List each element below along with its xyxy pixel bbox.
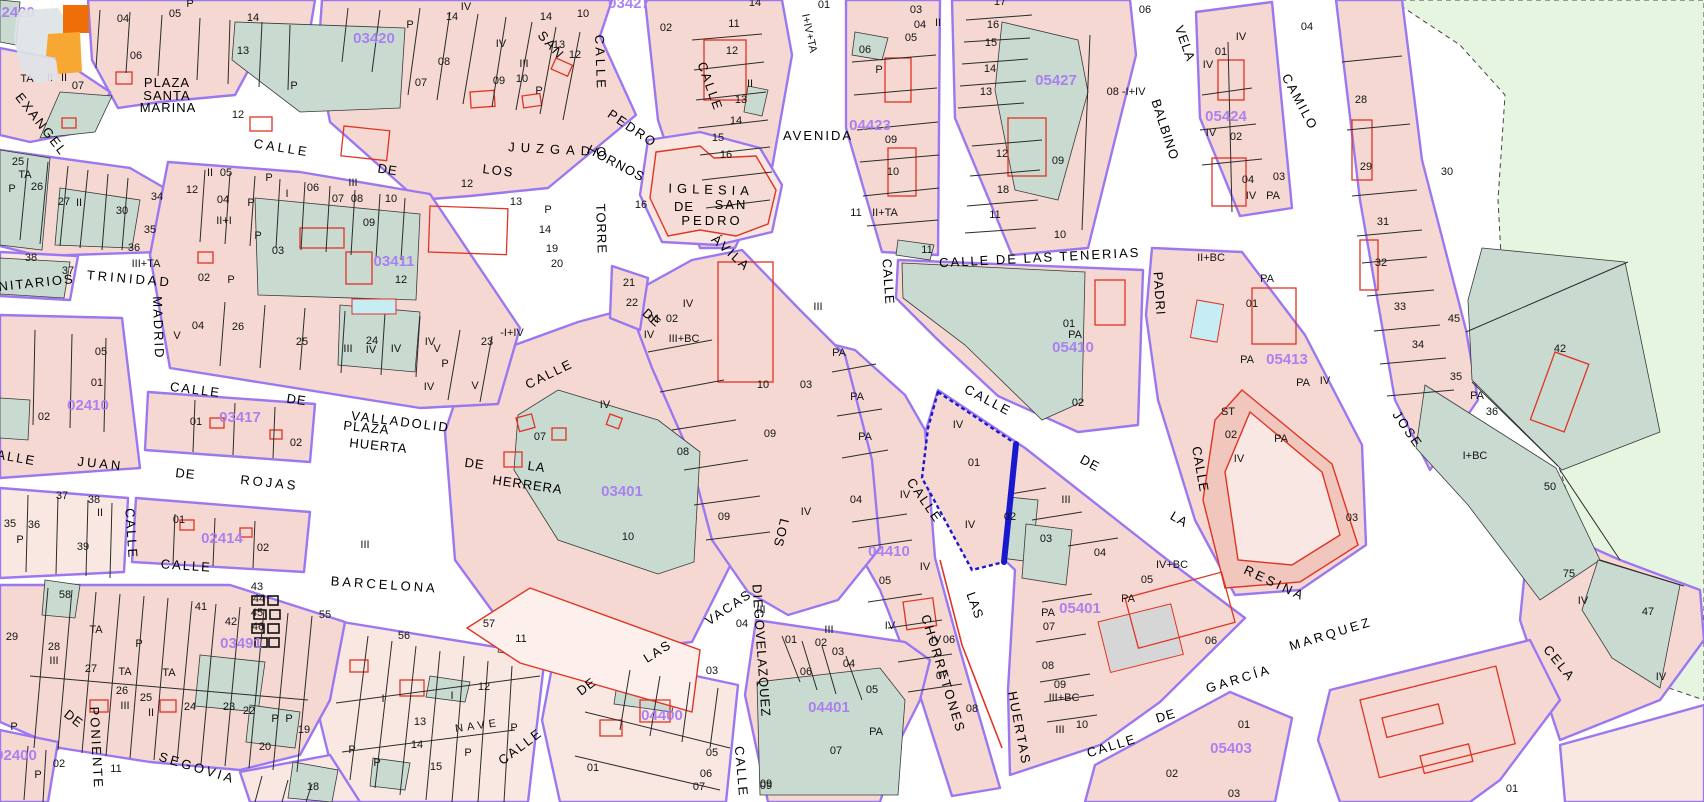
cadastral-block[interactable] [1318, 640, 1560, 802]
parcel-number-label: IV [366, 344, 377, 356]
parcel-number-label: III [120, 700, 129, 712]
parcel-number-label: 02 [666, 313, 678, 325]
parcel-number-label: -I+IV [500, 327, 524, 339]
parcel-number-label: 03 [1273, 171, 1285, 183]
parcel-number-label: 10 [757, 379, 769, 391]
parcel-number-label: 07 [332, 193, 344, 205]
parcel-number-label: 06 [307, 182, 319, 194]
street-name-label: DE [175, 465, 197, 482]
parcel-number-label: II [747, 78, 753, 90]
parcel-number-label: 01 [190, 416, 202, 428]
street-name-label: CALLE [879, 258, 897, 305]
block-id-label[interactable]: 03420 [353, 30, 395, 47]
parcel-number-label: I [381, 693, 384, 705]
parcel-number-label: P [464, 747, 471, 759]
parcel-number-label: IV [424, 381, 435, 393]
parcel-number-label: 01 [968, 457, 980, 469]
parcel-number-label: PA [1240, 354, 1255, 366]
parcel-number-label: 43 [251, 581, 263, 593]
parcel-number-label: 02 [1072, 397, 1084, 409]
parcel-number-label: PA [858, 431, 873, 443]
map-viewport[interactable]: CALLESANPEDROHORNOSTORRECALLEDELOSJUZGAD… [0, 0, 1704, 802]
parcel-number-label: PA [1470, 390, 1485, 402]
parcel-number-label: 04 [117, 13, 129, 25]
parcel-number-label: 14 [411, 739, 423, 751]
parcel-number-label: 07 [936, 670, 948, 682]
parcel-number-label: 04 [850, 494, 862, 506]
street-name-label: SAN [715, 197, 748, 212]
parcel-number-label: P [535, 85, 542, 97]
parcel-number-label: 01 [818, 0, 830, 11]
parcel-number-label: IV [461, 1, 472, 13]
parcel-number-label: 07 [1043, 621, 1055, 633]
parcel-number-label: III [824, 624, 833, 636]
street-name-label: DE [674, 199, 694, 214]
parcel-number-label: 11 [989, 209, 1000, 221]
parcel-number-label: 06 [700, 768, 712, 780]
parcel-number-label: 09 [760, 778, 772, 790]
parcel-number-label: 05 [220, 167, 232, 179]
parcel-number-label: 29 [1360, 161, 1372, 173]
street-name-label: CALLE [160, 556, 212, 575]
street-name-label: MADRID [150, 296, 167, 360]
parcel-number-label: 06 [130, 50, 142, 62]
parcel-number-label: 07 [830, 745, 842, 757]
parcel-number-label: 36 [1486, 406, 1498, 418]
parcel-number-label: 45 [251, 607, 263, 619]
parcel-number-label: 01 [648, 313, 660, 325]
parcel-number-label: P [510, 722, 517, 734]
parcel-number-label: 04 [843, 658, 855, 670]
parcel-number-label: 21 [623, 277, 635, 289]
parcel-number-label: 19 [546, 243, 558, 255]
parcel-number-label: 09 [718, 511, 730, 523]
overview-locator-highlight-icon [63, 5, 89, 33]
parcel-number-label: 05 [706, 747, 718, 759]
parcel-number-label: 13 [237, 45, 249, 57]
parcel-number-label: 11 [921, 244, 932, 256]
parcel-number-label: 42 [225, 616, 237, 628]
parcel-number-label: 26 [232, 321, 244, 333]
parcel-number-label: II [97, 507, 103, 519]
parcel-number-label: 38 [25, 252, 37, 264]
parcel-number-label: 16 [987, 19, 999, 31]
parcel-number-label: P [544, 204, 551, 216]
parcel-number-label: 37 [62, 265, 74, 277]
parcel-number-label: 10 [1076, 719, 1088, 731]
street-name-label: PONIENTE [87, 706, 106, 789]
street-name-label: BARCELONA [330, 573, 438, 595]
parcel-number-label: 10 [1054, 229, 1066, 241]
parcel-number-label: 14 [749, 0, 761, 9]
street-name-label: LAS [963, 590, 987, 621]
parcel-number-label: 11 [515, 633, 526, 645]
parcel-number-label: 44 [253, 593, 265, 605]
parcel-number-label: 02 [1166, 768, 1178, 780]
parcel-number-label: 57 [483, 618, 495, 630]
block-id-label[interactable]: 05403 [1210, 740, 1252, 757]
parcel-number-label: 08 -I+IV [1107, 86, 1146, 98]
parcel-number-label: 02 [257, 542, 269, 554]
parcel-number-label: 03 [800, 379, 812, 391]
block-id-label[interactable]: 03427 [608, 0, 650, 12]
parcel-number-label: 04 [217, 194, 229, 206]
parcel-number-label: 25 [140, 692, 152, 704]
parcel-number-label: 13 [553, 39, 565, 51]
parcel-number-label: 02 [660, 22, 672, 34]
parcel-number-label: 23 [223, 701, 235, 713]
parcel-number-label: P [265, 172, 272, 184]
parcel-number-label: 58 [59, 589, 71, 601]
parcel-number-label: 34 [151, 191, 163, 203]
parcel-number-label: IV [931, 634, 942, 646]
parcel-number-label: 13 [510, 196, 522, 208]
parcel-number-label: 01 [1238, 719, 1250, 731]
parcel-number-label: P [227, 274, 234, 286]
parcel-number-label: 01 [173, 514, 185, 526]
parcel-number-label: 09 [885, 134, 897, 146]
parcel-number-label: 10 [516, 73, 528, 85]
map-canvas[interactable]: CALLESANPEDROHORNOSTORRECALLEDELOSJUZGAD… [0, 0, 1704, 802]
block-id-label[interactable]: 02410 [67, 397, 109, 414]
parcel-number-label: 08 [966, 703, 978, 715]
parcel-number-label: 30 [1441, 166, 1453, 178]
parcel-number-label: P [135, 638, 142, 650]
parcel-number-label: 03 [272, 245, 284, 257]
parcel-number-label: PA [1068, 329, 1083, 341]
parcel-number-label: ST [1221, 406, 1235, 418]
parcel-number-label: 18 [997, 184, 1009, 196]
parcel-number-label: 10 [577, 8, 589, 20]
building-outline [250, 117, 272, 131]
parcel-number-label: P [285, 713, 292, 725]
parcel-number-label: 05 [1141, 574, 1153, 586]
parcel-number-label: 10 [385, 193, 397, 205]
parcel-number-label: PA [1296, 377, 1311, 389]
parcel-number-label: II+BC [1197, 252, 1225, 264]
parcel-number-label: PA [1041, 607, 1056, 619]
block-id-label[interactable]: 03411 [374, 253, 415, 270]
parcel-number-label: IV [1236, 31, 1247, 43]
parcel-number-label: 10 [622, 531, 634, 543]
parcel-number-label: II [61, 72, 67, 84]
parcel-number-label: 12 [232, 109, 244, 121]
parcel-number-label: 07 [415, 77, 427, 89]
parcel-number-label: III [1061, 494, 1070, 506]
parcel-number-label: 05 [905, 32, 917, 44]
block-id-label[interactable]: 02414 [201, 530, 243, 547]
parcel-number-label: 28 [1355, 94, 1367, 106]
parcel-number-label: IV [1234, 453, 1245, 465]
parcel-number-label: 09 [1054, 679, 1066, 691]
parcel-number-label: P [290, 80, 297, 92]
parcel-number-label: 39 [77, 541, 89, 553]
block-id-label[interactable]: 04400 [641, 707, 683, 724]
parcel-number-label: 03 [1346, 512, 1358, 524]
parcel-number-label: III [49, 655, 58, 667]
street-name-label: PADRI [1150, 271, 1168, 316]
parcel-number-label: 23 [481, 336, 493, 348]
street-name-label: LA [527, 458, 547, 475]
parcel-number-label: PA [832, 347, 847, 359]
parcel-number-label: IV [600, 399, 611, 411]
parcel-number-label: 27 [58, 196, 70, 208]
street-name-label: VELA [1172, 23, 1199, 63]
parcel-number-label: 06 [943, 634, 955, 646]
parcel-number-label: 14 [984, 63, 996, 75]
parcel-number-label: 31 [1377, 216, 1389, 228]
parcel-number-label: 07 [534, 431, 546, 443]
street-name-label: CALLE [732, 745, 751, 797]
parcel-number-label: III [348, 177, 357, 189]
parcel-number-label: 16 [635, 199, 647, 211]
cadastral-block[interactable] [1336, 0, 1478, 470]
parcel-number-label: 11 [110, 763, 121, 775]
parcel-number-label: 05 [95, 346, 107, 358]
courtyard-parcel[interactable] [0, 150, 50, 250]
parcel-number-label: 28 [48, 641, 60, 653]
parcel-number-label: 18 [307, 781, 319, 793]
parcel-number-label: 02 [38, 411, 50, 423]
parcel-number-label: 19 [298, 724, 310, 736]
street-name-label: HUERTA [349, 435, 408, 456]
pool [352, 299, 396, 314]
parcel-number-label: 11 [850, 207, 861, 219]
parcel-number-label: II [207, 167, 213, 179]
parcel-number-label: IV [683, 298, 694, 310]
parcel-number-label: 01 [1246, 298, 1258, 310]
block-id-label[interactable]: 05413 [1266, 351, 1308, 368]
pool [1190, 300, 1223, 342]
parcel-number-label: 06 [800, 666, 812, 678]
parcel-number-label: III [519, 58, 528, 70]
parcel-number-label: 06 [859, 44, 871, 56]
parcel-number-label: 16 [720, 149, 732, 161]
courtyard-parcel[interactable] [0, 398, 30, 440]
block-id-label[interactable]: 05427 [1035, 72, 1077, 89]
parcel-number-label: 06 [1139, 4, 1151, 16]
parcel-number-label: I [285, 188, 288, 200]
parcel-number-label: I [450, 690, 453, 702]
parcel-number-label: 09 [1052, 155, 1064, 167]
parcel-number-label: P [254, 230, 261, 242]
parcel-number-label: 04 [1094, 547, 1106, 559]
parcel-number-label: P [406, 19, 413, 31]
parcel-number-label: 02 [290, 437, 302, 449]
parcel-number-label: TA [89, 624, 103, 636]
parcel-number-label: 03 [910, 4, 922, 16]
parcel-number-label: 27 [85, 663, 97, 675]
parcel-number-label: 35 [4, 518, 16, 530]
parcel-number-label: P [348, 744, 355, 756]
parcel-number-label: 35 [144, 224, 156, 236]
parcel-number-label: 13 [735, 94, 747, 106]
parcel-number-label: IV [801, 506, 812, 518]
parcel-number-label: 24 [184, 701, 196, 713]
parcel-number-label: 03 [1228, 788, 1240, 800]
parcel-number-label: 38 [88, 494, 100, 506]
parcel-number-label: 02 [1225, 429, 1237, 441]
parcel-number-label: 14 [446, 11, 458, 23]
block-id-label[interactable]: 02400 [0, 747, 37, 764]
parcel-number-label: 26 [116, 685, 128, 697]
parcel-number-label: 20 [259, 741, 271, 753]
block-id-label[interactable]: 04423 [849, 117, 891, 134]
street-name-label: MARQUEZ [1287, 614, 1374, 653]
street-name-label: GARCÍA [1204, 662, 1273, 696]
parcel-number-label: IV [1246, 190, 1257, 202]
street-name-label: DE [1078, 452, 1103, 475]
parcel-number-label: 34 [1412, 339, 1424, 351]
parcel-number-label: III+BC [669, 333, 700, 345]
parcel-number-label: IV [900, 489, 911, 501]
block-id-label[interactable]: 05424 [1205, 108, 1247, 125]
parcel-number-label: 12 [395, 274, 407, 286]
parcel-number-label: 14 [539, 224, 551, 236]
parcel-number-label: IV [1656, 671, 1667, 683]
parcel-number-label: P [8, 183, 15, 195]
parcel-number-label: 36 [128, 242, 140, 254]
street-name-label: PEDRO [681, 213, 742, 228]
courtyard-parcel[interactable] [338, 305, 420, 372]
parcel-number-label: IV [1320, 375, 1331, 387]
parcel-number-label: P [16, 534, 23, 546]
parcel-number-label: III [813, 301, 822, 313]
parcel-number-label: 15 [712, 132, 724, 144]
parcel-number-label: I+IV+TA [799, 13, 819, 55]
parcel-number-label: 56 [398, 630, 410, 642]
parcel-number-label: 29 [6, 631, 18, 643]
parcel-number-label: 35 [1450, 371, 1462, 383]
parcel-number-label: 02 [1230, 131, 1242, 143]
parcel-number-label: V [471, 380, 479, 392]
street-name-label: AVENIDA [783, 128, 853, 143]
parcel-number-label: II [935, 17, 941, 29]
parcel-number-label: 01 [1506, 783, 1518, 795]
parcel-number-label: III [343, 343, 352, 355]
block-id-label[interactable]: 05410 [1052, 339, 1094, 356]
parcel-number-label: TA [118, 666, 132, 678]
parcel-number-label: 17 [994, 0, 1006, 8]
parcel-number-label: 42 [1554, 343, 1566, 355]
parcel-number-label: 22 [626, 297, 638, 309]
parcel-number-label: P [10, 721, 17, 733]
parcel-number-label: 30 [116, 205, 128, 217]
street-name-label: TORRE [593, 203, 610, 254]
parcel-number-label: 01 [1215, 46, 1227, 58]
parcel-number-label: 08 [1042, 660, 1054, 672]
block-id-label[interactable]: 04410 [868, 543, 910, 560]
parcel-number-label: IV [965, 519, 976, 531]
parcel-number-label: III+TA [132, 258, 161, 270]
parcel-number-label: 01 [91, 377, 103, 389]
parcel-number-label: IV [920, 561, 931, 573]
parcel-number-label: 05 [879, 575, 891, 587]
block-id-label[interactable]: 03417 [219, 409, 261, 426]
parcel-number-label: 20 [551, 258, 563, 270]
parcel-number-label: 15 [430, 761, 442, 773]
selected-parcel[interactable] [922, 392, 1016, 570]
street-name-label: DE [377, 161, 399, 179]
parcel-number-label: TA [18, 169, 32, 181]
parcel-number-label: 04 [192, 320, 204, 332]
parcel-number-label: III [1055, 724, 1064, 736]
parcel-number-label: 02 [53, 758, 65, 770]
block-id-label[interactable]: 05401 [1059, 600, 1101, 617]
parcel-number-label: 08 [677, 446, 689, 458]
parcel-number-label: 12 [478, 681, 490, 693]
parcel-number-label: IV [1578, 595, 1589, 607]
street-name-label: IGLESIA [668, 181, 754, 199]
parcel-number-label: PA [1121, 593, 1136, 605]
parcel-number-label: P [186, 0, 193, 10]
parcel-number-label: 25 [296, 336, 308, 348]
parcel-number-label: 09 [493, 75, 505, 87]
cadastral-block[interactable] [0, 730, 58, 802]
street-name-label: CALLE [253, 136, 311, 160]
parcel-number-label: V [173, 330, 181, 342]
block-id-label[interactable]: 03491 [220, 635, 262, 652]
parcel-number-label: 14 [540, 11, 552, 23]
street-name-label: BALBINO [1148, 97, 1182, 162]
street-name-label: CALLE [592, 34, 609, 91]
parcel-number-label: 04 [1242, 174, 1254, 186]
parcel-number-label: 47 [1642, 606, 1654, 618]
parcel-number-label: P [875, 64, 882, 76]
parcel-number-label: 03 [832, 646, 844, 658]
parcel-number-label: IV [496, 38, 507, 50]
parcel-number-label: PA [1266, 190, 1281, 202]
parcel-number-label: 09 [764, 428, 776, 440]
parcel-number-label: II [76, 197, 82, 209]
block-id-label[interactable]: 03401 [601, 483, 643, 500]
parcel-number-label: 14 [730, 115, 742, 127]
parcel-number-label: 14 [247, 12, 259, 24]
parcel-number-label: IV [885, 620, 896, 632]
parcel-number-label: 02 [198, 272, 210, 284]
parcel-number-label: P [271, 713, 278, 725]
parcel-number-label: 25 [12, 156, 24, 168]
parcel-number-label: 04 [736, 618, 748, 630]
parcel-number-label: 32 [1375, 257, 1387, 269]
parcel-number-label: 45 [1448, 313, 1460, 325]
parcel-number-label: 04 [1301, 21, 1313, 33]
parcel-number-label: P [441, 358, 448, 370]
parcel-number-label: IV [391, 343, 402, 355]
parcel-number-label: PA [1274, 433, 1289, 445]
street-name-label: DE [464, 455, 486, 473]
parcel-number-label: III [756, 604, 765, 616]
parcel-number-label: 02 [815, 637, 827, 649]
parcel-number-label: II+TA [872, 207, 898, 219]
parcel-number-label: 46 [252, 621, 264, 633]
parcel-number-label: 04 [914, 19, 926, 31]
parcel-number-label: PA [1260, 273, 1275, 285]
parcel-number-label: 05 [169, 8, 181, 20]
parcel-number-label: 33 [1394, 301, 1406, 313]
block-id-label[interactable]: 04401 [808, 699, 850, 716]
parcel-number-label: P [34, 769, 41, 781]
parcel-number-label: IV [953, 419, 964, 431]
parcel-number-label: 03 [706, 665, 718, 677]
parcel-number-label: IV [1206, 127, 1217, 139]
parcel-number-label: 12 [996, 148, 1008, 160]
parcel-number-label: 36 [28, 519, 40, 531]
street-name-label: MARINA [140, 100, 197, 115]
parcel-number-label: III [360, 539, 369, 551]
parcel-number-label: I+BC [1463, 450, 1488, 462]
street-name-label: ROJAS [240, 472, 300, 493]
